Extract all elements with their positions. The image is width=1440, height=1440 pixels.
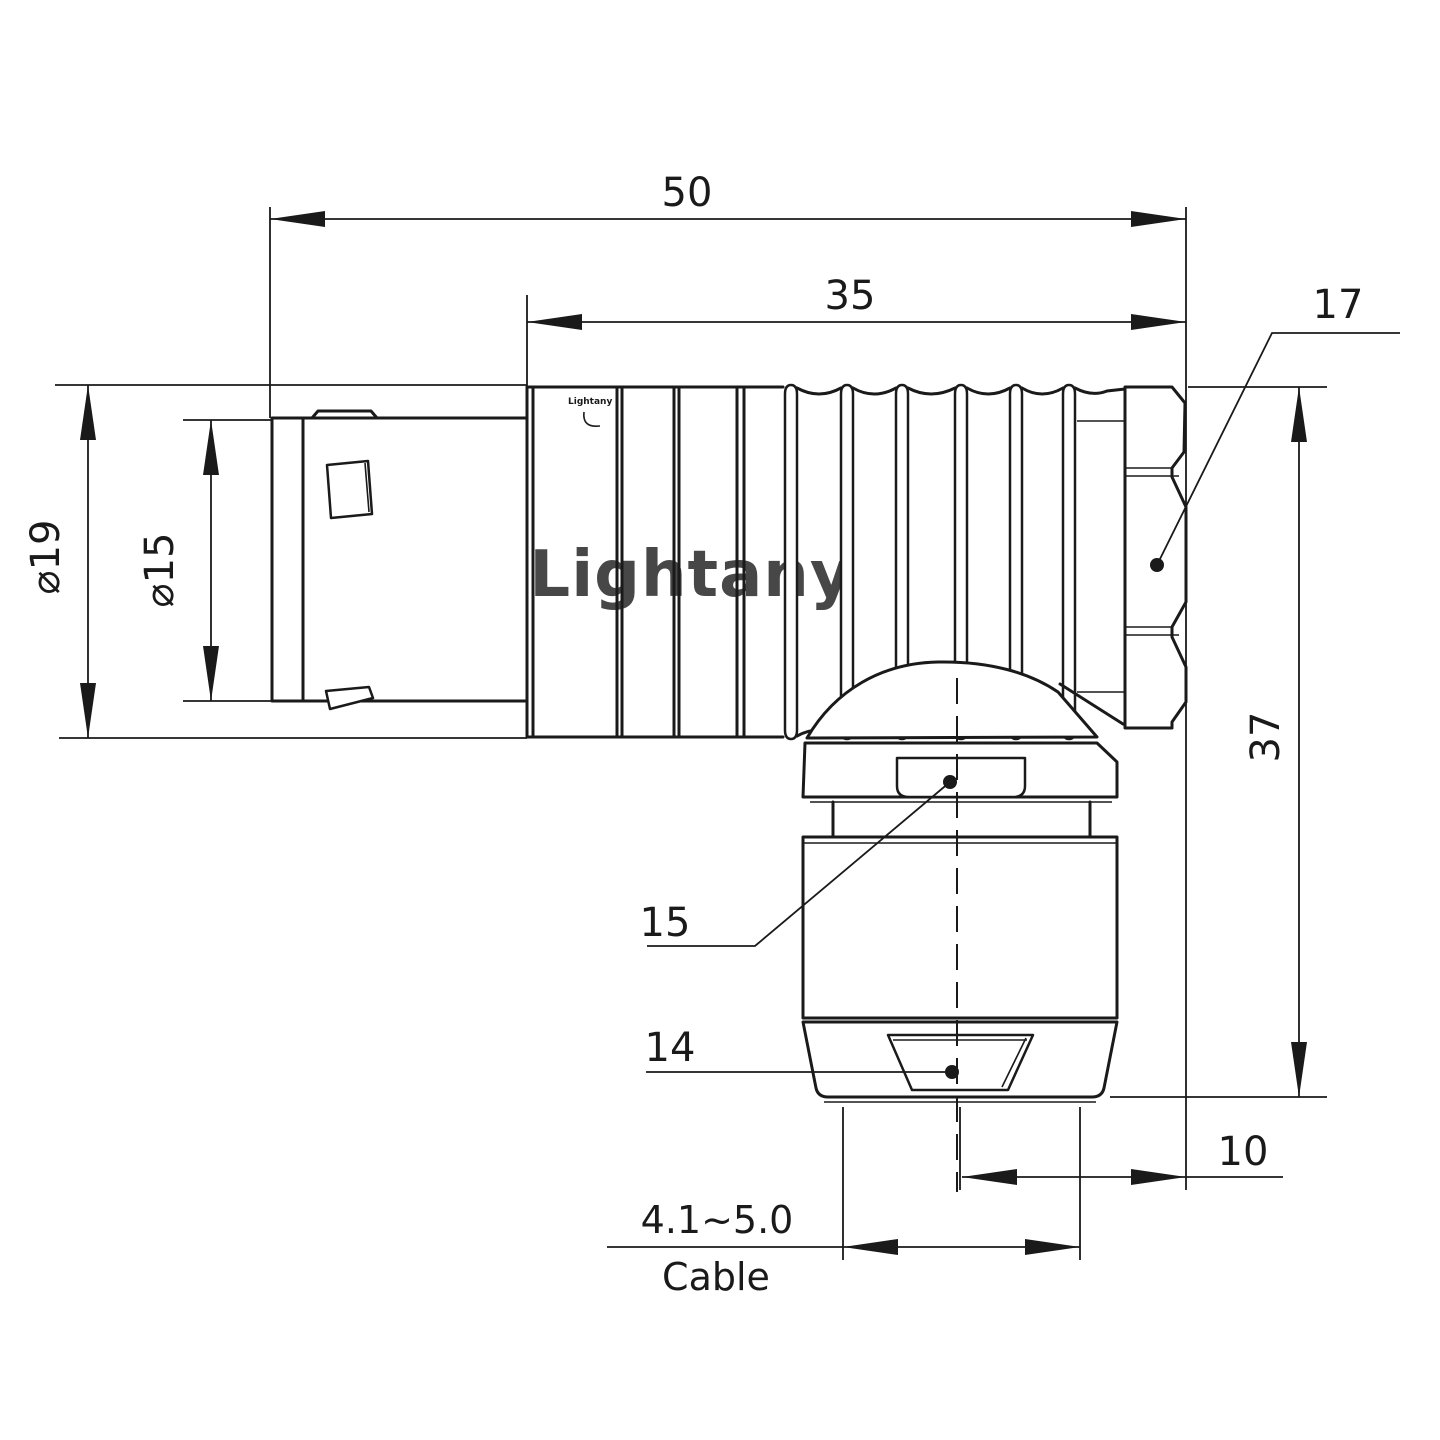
technical-drawing: Lightany: [0, 0, 1440, 1440]
engraving-hook: [584, 412, 600, 426]
cable-nut-wrench-flat: [888, 1035, 1033, 1090]
arrow-left: [962, 1169, 1017, 1185]
arrow-down: [80, 683, 96, 738]
clamp-collar: [803, 743, 1117, 802]
dim-17-label: 17: [1313, 282, 1364, 328]
extension-lines: [55, 207, 1327, 1260]
dimension-overall-length: 50: [270, 170, 1186, 227]
cable-caption: Cable: [662, 1255, 770, 1299]
cable-range-label: 4.1~5.0: [641, 1198, 794, 1242]
cable-clamp-nut: [803, 1022, 1117, 1102]
dim-dia19-label: ⌀19: [23, 520, 69, 595]
dimension-front-to-rear: 35: [527, 273, 1186, 330]
dimension-mating-diameter: ⌀15: [137, 420, 219, 701]
barrel-keyway-slot: [326, 687, 373, 709]
engraving-text: Lightany: [568, 397, 612, 407]
grip-rib: [841, 385, 853, 739]
dim-dia15-label: ⌀15: [137, 533, 183, 608]
dim-10-label: 10: [1218, 1129, 1269, 1175]
leader-dot: [1150, 558, 1164, 572]
arrow-right: [1131, 1169, 1186, 1185]
lower-cylinder: [803, 837, 1117, 1018]
arrow-down: [203, 646, 219, 701]
barrel-key-bump: [312, 411, 377, 418]
dimension-total-height: 37: [1243, 387, 1307, 1097]
grip-rib: [785, 385, 797, 739]
collar-wrench-flat: [897, 758, 1025, 797]
leader-dot: [943, 775, 957, 789]
dim-50-label: 50: [662, 170, 713, 216]
arrow-right: [1131, 314, 1186, 330]
arrow-up: [80, 385, 96, 440]
dim-14-label: 14: [645, 1025, 696, 1071]
rear-shoulder-lines: [1077, 421, 1125, 692]
dim-37-label: 37: [1243, 712, 1289, 763]
arrow-right: [1025, 1239, 1080, 1255]
collar-neck: [833, 802, 1090, 837]
barrel-outline: [272, 418, 527, 701]
hex-back-nut: [1077, 387, 1186, 728]
arrow-up: [203, 420, 219, 475]
dimension-outer-diameter: ⌀19: [23, 385, 96, 738]
arrow-left: [527, 314, 582, 330]
arrow-right: [1131, 211, 1186, 227]
dim-35-label: 35: [825, 273, 876, 319]
arrow-down: [1291, 1042, 1307, 1097]
front-barrel: [272, 411, 527, 709]
leader-dot: [945, 1065, 959, 1079]
dimension-axis-to-rear: 10: [962, 1129, 1283, 1185]
hex-nut-outline: [1125, 387, 1186, 728]
watermark: Lightany: [529, 538, 852, 612]
cylinder-outline: [803, 837, 1117, 1018]
body-engraving: Lightany: [568, 397, 612, 426]
dim-15-label: 15: [640, 900, 691, 946]
drawing-canvas: Lightany: [0, 0, 1440, 1440]
arrow-left: [270, 211, 325, 227]
arrow-left: [843, 1239, 898, 1255]
arrow-up: [1291, 387, 1307, 442]
